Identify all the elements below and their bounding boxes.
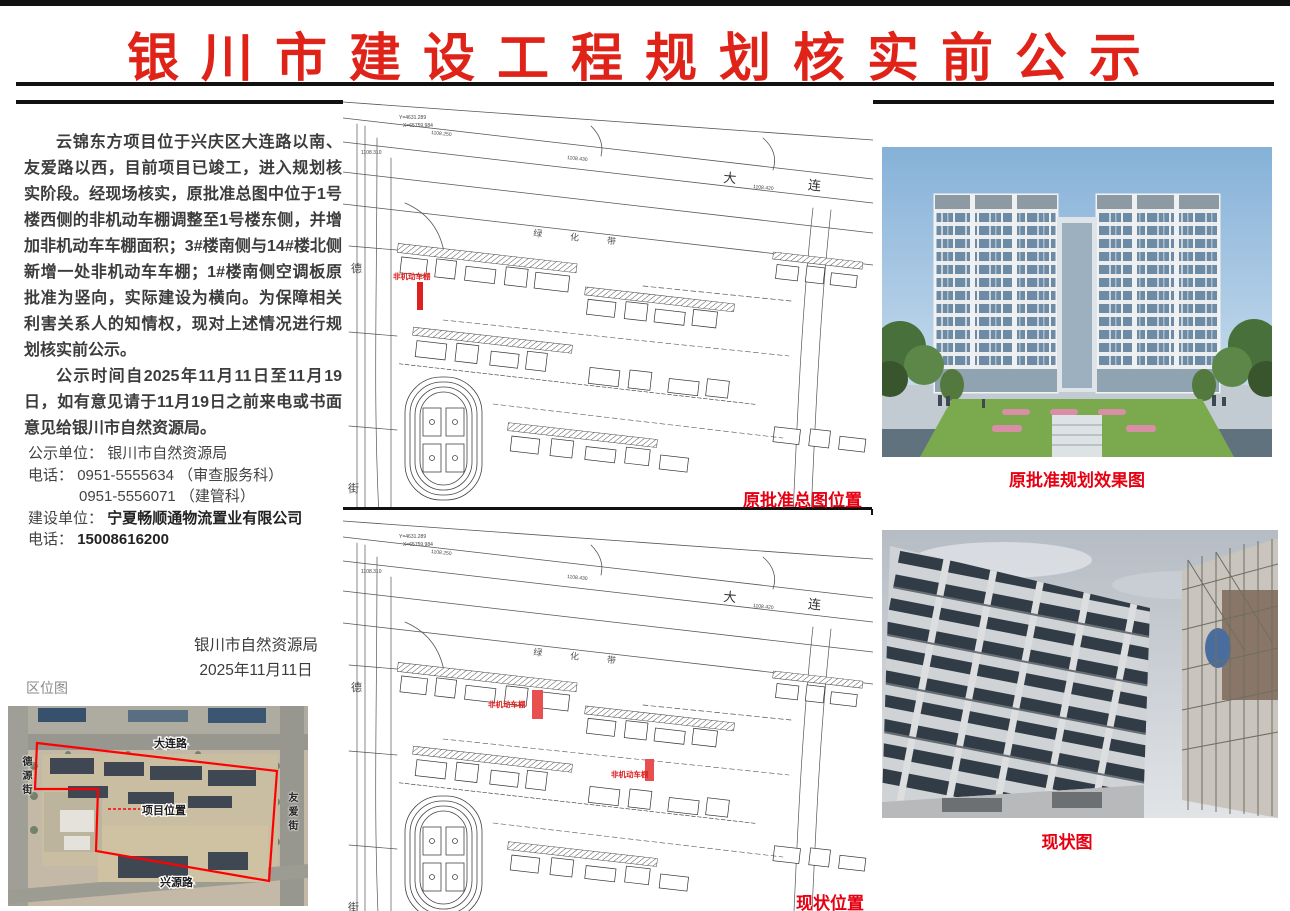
page-title: 银川市建设工程规划核实前公示 xyxy=(0,16,1290,91)
photo-caption: 现状图 xyxy=(882,828,1252,853)
rendering-caption: 原批准规划效果图 xyxy=(882,466,1272,491)
signature-org: 银川市自然资源局 xyxy=(186,633,326,658)
signature-block: 银川市自然资源局 2025年11月11日 xyxy=(186,633,326,683)
plan2-red-shed-marker-1 xyxy=(532,690,543,719)
phone2-value: 0951-5556071 （建管科） xyxy=(79,488,255,505)
builder-line: 建设单位： 宁夏畅顺通物流置业有限公司 xyxy=(28,508,348,530)
phone3-value: 15008616200 xyxy=(77,531,169,548)
approved-rendering-image xyxy=(882,147,1272,457)
map-road-bottom-label: 兴源路 xyxy=(160,875,194,889)
plan1-red-shed-label: 非机动车棚 xyxy=(393,271,431,281)
plan1-red-shed-marker xyxy=(417,282,423,310)
contact-block: 公示单位： 银川市自然资源局 电话： 0951-5555634 （审查服务科） … xyxy=(28,443,348,551)
phone1-label: 电话： xyxy=(28,467,73,484)
phone1-value: 0951-5555634 （审查服务科） xyxy=(77,467,283,484)
location-map-label: 区位图 xyxy=(26,678,68,698)
location-map: 项目位置 大连路 兴源路 xyxy=(8,706,308,906)
notice-paragraph-1: 云锦东方项目位于兴庆区大连路以南、友爱路以西，目前项目已竣工，进入规划核实阶段。… xyxy=(24,130,342,364)
notice-body: 云锦东方项目位于兴庆区大连路以南、友爱路以西，目前项目已竣工，进入规划核实阶段。… xyxy=(24,130,342,442)
site-plan-approved: 非机动车棚 xyxy=(343,96,873,509)
plan2-red-shed-label-1: 非机动车棚 xyxy=(488,699,526,709)
signature-date: 2025年11月11日 xyxy=(186,658,326,683)
builder-value: 宁夏畅顺通物流置业有限公司 xyxy=(107,510,302,527)
phone2-line: 0951-5556071 （建管科） xyxy=(28,486,348,508)
publicity-unit-line: 公示单位： 银川市自然资源局 xyxy=(28,443,348,465)
plan1-caption: 原批准总图位置 xyxy=(743,486,862,511)
phone3-label: 电话： xyxy=(28,531,73,548)
current-photo-image xyxy=(882,530,1278,818)
map-site-label: 项目位置 xyxy=(142,803,186,817)
publicity-unit-label: 公示单位： xyxy=(28,445,103,462)
notice-page: 大连 绿化带 Y=4631.289 X=65759.984 1108.250 1… xyxy=(0,0,1290,911)
plan2-red-shed-label-2: 非机动车棚 xyxy=(611,769,649,779)
publicity-unit-value: 银川市自然资源局 xyxy=(107,445,227,462)
site-plan-current: 非机动车棚 非机动车棚 xyxy=(343,515,873,911)
map-road-left-label: 德源街 xyxy=(18,756,33,798)
notice-paragraph-2: 公示时间自2025年11月11日至11月19日，如有意见请于11月19日之前来电… xyxy=(24,364,342,442)
map-road-right-label: 友爱街 xyxy=(284,792,299,834)
map-road-top-label: 大连路 xyxy=(154,736,188,750)
plan2-caption: 现状位置 xyxy=(796,889,864,911)
phone1-line: 电话： 0951-5555634 （审查服务科） xyxy=(28,465,348,487)
rendering-towers xyxy=(935,195,1219,392)
title-rule-upper xyxy=(16,82,1274,86)
phone3-line: 电话： 15008616200 xyxy=(28,529,348,551)
builder-label: 建设单位： xyxy=(28,510,103,527)
top-black-bar xyxy=(0,0,1290,6)
